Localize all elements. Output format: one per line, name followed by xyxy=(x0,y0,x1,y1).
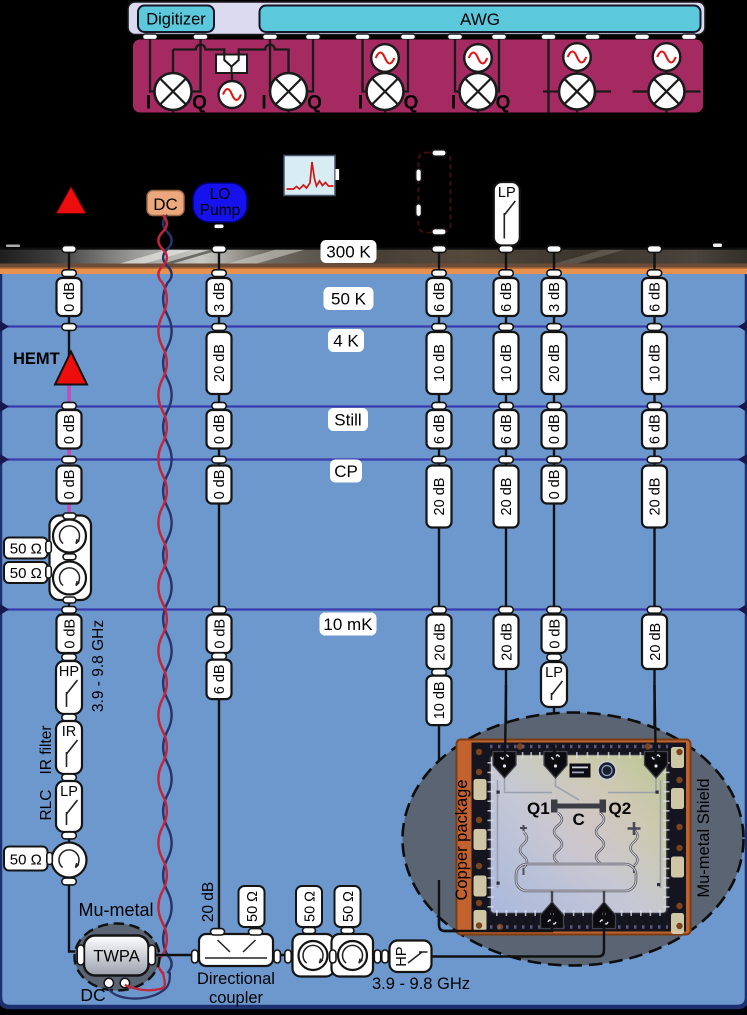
svg-text:20 dB: 20 dB xyxy=(499,478,515,516)
svg-text:AWG: AWG xyxy=(460,10,500,29)
svg-text:TWPA: TWPA xyxy=(93,948,139,966)
svg-text:Mu-metal Shield: Mu-metal Shield xyxy=(695,778,713,897)
svg-text:3.9 - 9.8 GHz: 3.9 - 9.8 GHz xyxy=(90,620,107,712)
svg-text:0 dB: 0 dB xyxy=(547,619,563,649)
svg-text:HP: HP xyxy=(394,946,410,966)
svg-text:0 dB: 0 dB xyxy=(62,619,78,649)
svg-text:6 dB: 6 dB xyxy=(499,414,515,444)
svg-text:HP: HP xyxy=(59,664,79,680)
svg-text:50 K: 50 K xyxy=(331,290,367,309)
svg-text:3 dB: 3 dB xyxy=(212,282,228,312)
svg-text:IR: IR xyxy=(62,724,77,740)
svg-text:20 dB: 20 dB xyxy=(212,344,228,382)
svg-text:LP: LP xyxy=(545,665,563,681)
svg-text:50 Ω: 50 Ω xyxy=(10,565,42,582)
svg-text:Q1: Q1 xyxy=(527,799,550,818)
svg-text:20 dB: 20 dB xyxy=(648,478,664,516)
svg-text:DC: DC xyxy=(80,985,105,1005)
svg-text:10 dB: 10 dB xyxy=(648,344,664,382)
svg-text:0 dB: 0 dB xyxy=(212,619,228,649)
svg-text:Copper package: Copper package xyxy=(453,779,471,900)
svg-text:HEMT: HEMT xyxy=(13,350,60,368)
svg-text:0 dB: 0 dB xyxy=(62,470,78,500)
svg-text:Mu-metal: Mu-metal xyxy=(78,900,153,920)
svg-text:4 K: 4 K xyxy=(333,332,359,351)
svg-text:IR filter: IR filter xyxy=(38,725,55,774)
svg-text:6 dB: 6 dB xyxy=(432,282,448,312)
svg-text:Still: Still xyxy=(334,411,361,430)
svg-text:20 dB: 20 dB xyxy=(200,882,217,923)
svg-text:20 dB: 20 dB xyxy=(432,478,448,516)
svg-text:coupler: coupler xyxy=(209,989,264,1007)
svg-text:0 dB: 0 dB xyxy=(62,282,78,312)
svg-text:Q: Q xyxy=(496,93,511,114)
svg-text:LP: LP xyxy=(498,185,516,201)
svg-text:50 Ω: 50 Ω xyxy=(10,541,42,558)
svg-text:Directional: Directional xyxy=(197,970,275,988)
svg-text:I: I xyxy=(358,93,363,114)
svg-text:0 dB: 0 dB xyxy=(547,470,563,500)
svg-text:Q2: Q2 xyxy=(609,799,632,818)
svg-text:10 dB: 10 dB xyxy=(499,344,515,382)
svg-text:I: I xyxy=(146,93,151,114)
svg-text:50 Ω: 50 Ω xyxy=(245,891,261,922)
svg-text:LO: LO xyxy=(210,186,231,203)
svg-text:I: I xyxy=(261,93,266,114)
svg-text:0 dB: 0 dB xyxy=(62,414,78,444)
svg-text:0 dB: 0 dB xyxy=(547,414,563,444)
svg-text:50 Ω: 50 Ω xyxy=(10,852,42,869)
svg-text:DC: DC xyxy=(153,195,178,214)
svg-text:10 dB: 10 dB xyxy=(432,681,448,719)
svg-text:I: I xyxy=(451,93,456,114)
svg-text:300 K: 300 K xyxy=(326,243,371,262)
svg-text:50 Ω: 50 Ω xyxy=(341,891,357,922)
svg-text:Digitizer: Digitizer xyxy=(146,11,206,29)
svg-text:C: C xyxy=(573,810,585,829)
svg-text:0 dB: 0 dB xyxy=(212,414,228,444)
svg-text:Pump: Pump xyxy=(200,202,241,219)
svg-text:20 dB: 20 dB xyxy=(648,623,664,661)
svg-text:0 dB: 0 dB xyxy=(212,470,228,500)
svg-text:Q: Q xyxy=(192,93,207,114)
svg-text:6 dB: 6 dB xyxy=(432,414,448,444)
svg-text:CP: CP xyxy=(334,462,358,481)
svg-text:50 Ω: 50 Ω xyxy=(303,891,319,922)
svg-text:3 dB: 3 dB xyxy=(547,282,563,312)
svg-text:20 dB: 20 dB xyxy=(547,344,563,382)
svg-text:6 dB: 6 dB xyxy=(212,664,228,694)
svg-text:Q: Q xyxy=(404,93,419,114)
svg-text:LP: LP xyxy=(60,784,78,800)
svg-text:Q: Q xyxy=(307,93,322,114)
svg-text:RLC: RLC xyxy=(38,789,55,820)
svg-text:10 mK: 10 mK xyxy=(323,615,373,634)
svg-text:6 dB: 6 dB xyxy=(648,414,664,444)
svg-text:10 dB: 10 dB xyxy=(432,344,448,382)
svg-text:20 dB: 20 dB xyxy=(432,623,448,661)
svg-text:6 dB: 6 dB xyxy=(499,282,515,312)
svg-text:3.9 - 9.8 GHz: 3.9 - 9.8 GHz xyxy=(372,975,470,993)
svg-text:20 dB: 20 dB xyxy=(499,623,515,661)
svg-text:6 dB: 6 dB xyxy=(648,282,664,312)
